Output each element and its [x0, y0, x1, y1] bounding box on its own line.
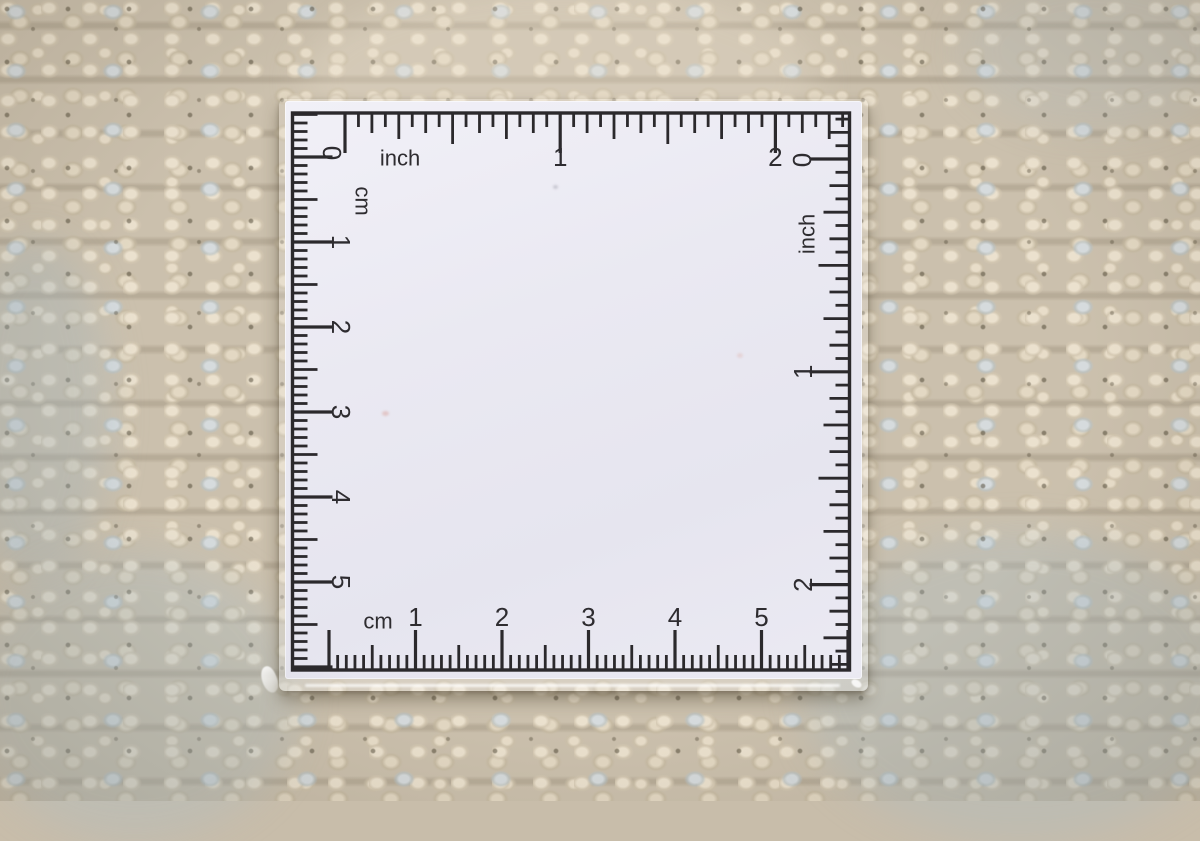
sleeve-glint-bottom: [305, 684, 840, 687]
left-scale-unit-label: cm: [351, 186, 376, 215]
ruler-card: 0inch12cm123450inch12cm12345: [285, 101, 862, 679]
card-blemish: [553, 185, 558, 189]
bottom-scale-number: 2: [495, 602, 509, 632]
bottom-scale-number: 5: [754, 602, 768, 632]
top-inch-scale: 0inch12: [317, 113, 843, 172]
top-scale-number: 2: [768, 142, 782, 172]
left-scale-number: 1: [326, 235, 356, 249]
fabric-blue-patch: [960, 0, 1200, 130]
bottom-cm-scale: cm12345: [329, 602, 848, 670]
left-cm-scale: cm12345: [293, 115, 376, 668]
left-scale-number: 2: [326, 320, 356, 334]
bottom-scale-number: 3: [581, 602, 595, 632]
fabric-blue-patch: [0, 550, 300, 840]
bottom-scale-number: 1: [408, 602, 422, 632]
right-inch-scale: 0inch12: [787, 119, 850, 664]
right-scale-number: 2: [788, 577, 818, 591]
ruler-scales: 0inch12cm123450inch12cm12345: [285, 101, 862, 679]
bottom-scale-number: 4: [668, 602, 682, 632]
left-scale-number: 3: [326, 405, 356, 419]
left-scale-number: 5: [326, 575, 356, 589]
card-blemish: [382, 411, 389, 416]
fabric-blue-patch: [0, 240, 110, 580]
left-scale-number: 4: [326, 490, 356, 504]
card-blemish: [737, 353, 743, 358]
right-scale-zero-label: 0: [787, 153, 817, 167]
top-scale-unit-label: inch: [380, 146, 420, 171]
right-scale-unit-label: inch: [795, 214, 820, 254]
bottom-scale-unit-label: cm: [363, 609, 392, 634]
right-scale-number: 1: [788, 365, 818, 379]
top-scale-number: 1: [553, 142, 567, 172]
